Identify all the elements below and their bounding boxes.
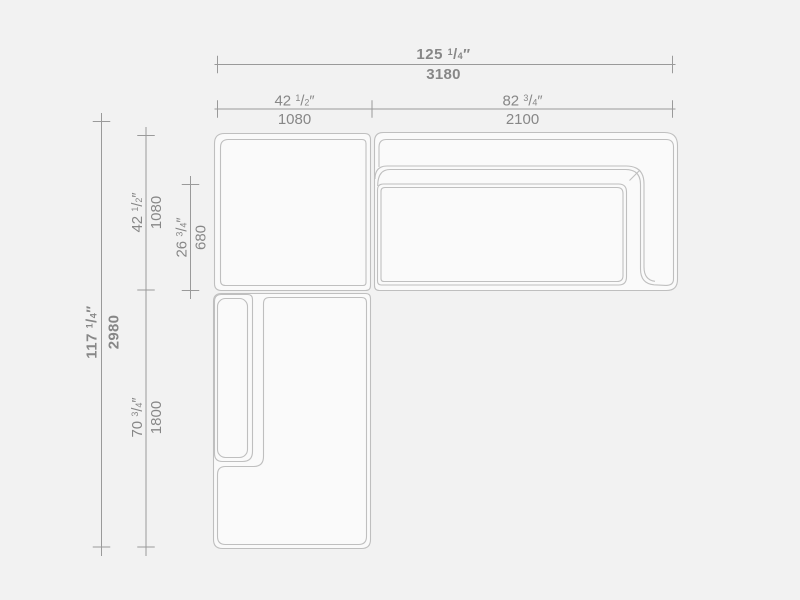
svg-text:26 3/4″: 26 3/4″	[174, 217, 191, 257]
svg-text:2100: 2100	[506, 111, 539, 128]
svg-text:42 1/2″: 42 1/2″	[274, 92, 314, 109]
svg-text:125 1/4″: 125 1/4″	[416, 46, 470, 63]
svg-text:1080: 1080	[148, 196, 165, 229]
svg-text:70 3/4″: 70 3/4″	[129, 397, 146, 437]
svg-text:42 1/2″: 42 1/2″	[129, 192, 146, 232]
svg-text:82 3/4″: 82 3/4″	[502, 92, 542, 109]
svg-text:117 1/4″: 117 1/4″	[84, 305, 101, 358]
svg-text:1800: 1800	[148, 401, 165, 434]
svg-text:1080: 1080	[278, 111, 311, 128]
svg-text:3180: 3180	[426, 66, 461, 83]
svg-text:680: 680	[192, 225, 209, 250]
svg-text:2980: 2980	[106, 315, 123, 350]
